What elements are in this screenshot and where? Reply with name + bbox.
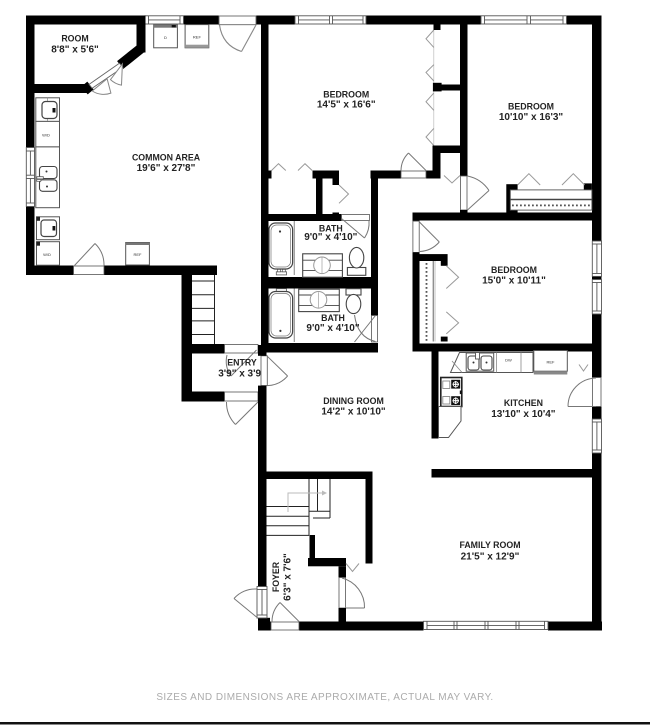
svg-text:21'5" x 12'9": 21'5" x 12'9" bbox=[461, 552, 520, 563]
svg-text:BEDROOM: BEDROOM bbox=[491, 265, 537, 275]
svg-text:19'6" x 27'8": 19'6" x 27'8" bbox=[137, 163, 196, 174]
svg-text:9'0" x 4'10": 9'0" x 4'10" bbox=[304, 232, 357, 243]
svg-text:COMMON AREA: COMMON AREA bbox=[132, 153, 201, 163]
svg-text:D: D bbox=[164, 35, 167, 40]
svg-text:SIZES AND DIMENSIONS ARE APPRO: SIZES AND DIMENSIONS ARE APPROXIMATE, AC… bbox=[156, 692, 493, 703]
svg-text:DW: DW bbox=[505, 358, 512, 363]
svg-text:15'0" x 10'11": 15'0" x 10'11" bbox=[482, 276, 546, 287]
svg-text:6'3" x 7'6": 6'3" x 7'6" bbox=[283, 553, 294, 601]
svg-text:13'10" x 10'4": 13'10" x 10'4" bbox=[491, 409, 556, 420]
svg-text:W/D: W/D bbox=[43, 252, 51, 257]
svg-text:ENTRY: ENTRY bbox=[227, 357, 257, 367]
svg-text:BEDROOM: BEDROOM bbox=[508, 102, 554, 112]
svg-text:9'0" x 4'10": 9'0" x 4'10" bbox=[306, 323, 359, 334]
svg-text:14'2" x 10'10": 14'2" x 10'10" bbox=[321, 407, 386, 418]
svg-text:14'5" x 16'6": 14'5" x 16'6" bbox=[317, 100, 376, 111]
svg-text:BEDROOM: BEDROOM bbox=[323, 90, 369, 100]
svg-text:ROOM: ROOM bbox=[61, 33, 88, 43]
svg-text:DINING ROOM: DINING ROOM bbox=[323, 396, 384, 406]
svg-text:KITCHEN: KITCHEN bbox=[504, 398, 543, 408]
svg-text:8'8" x 5'6": 8'8" x 5'6" bbox=[51, 45, 99, 56]
svg-text:W/D: W/D bbox=[42, 133, 50, 138]
svg-text:BATH: BATH bbox=[321, 313, 345, 323]
svg-text:FOYER: FOYER bbox=[271, 561, 281, 592]
svg-text:10'10" x 16'3": 10'10" x 16'3" bbox=[499, 112, 564, 123]
svg-text:REF: REF bbox=[134, 252, 143, 257]
svg-text:REF: REF bbox=[547, 360, 556, 365]
svg-text:FAMILY ROOM: FAMILY ROOM bbox=[459, 540, 520, 550]
svg-text:3'9" x 3'9": 3'9" x 3'9" bbox=[218, 369, 266, 380]
svg-text:REF: REF bbox=[193, 35, 202, 40]
